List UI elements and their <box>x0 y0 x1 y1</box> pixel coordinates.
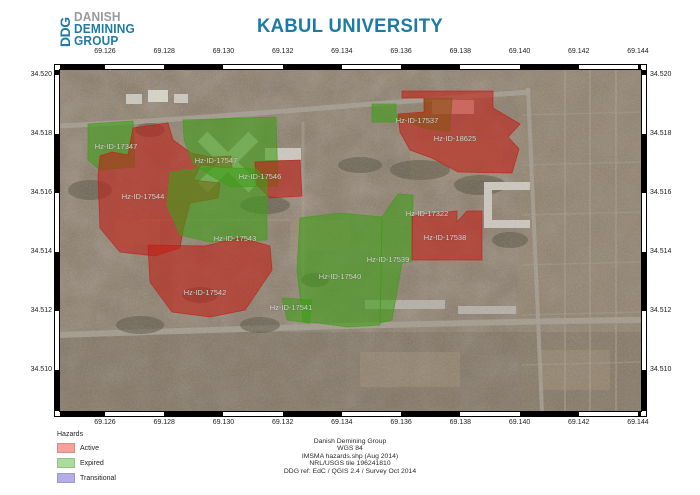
y-axis-label-right: 34.512 <box>650 307 671 314</box>
hazard-label-hz-id-17544: Hz-ID-17544 <box>122 192 165 201</box>
map-credits: Danish Demining GroupWGS 84IMSMA hazards… <box>0 438 700 475</box>
y-axis-label-left: 34.516 <box>22 189 52 196</box>
hazard-label-hz-id-17537: Hz-ID-17537 <box>396 116 439 125</box>
y-axis-label-left: 34.510 <box>22 366 52 373</box>
y-axis-label-right: 34.518 <box>650 130 671 137</box>
y-axis-label-left: 34.518 <box>22 130 52 137</box>
y-axis-label-left: 34.520 <box>22 71 52 78</box>
hazard-label-hz-id-18625: Hz-ID-18625 <box>434 134 477 143</box>
hazard-label-hz-id-17543: Hz-ID-17543 <box>214 234 257 243</box>
x-axis-label-bottom: 69.134 <box>331 419 352 426</box>
x-axis-label-bottom: 69.136 <box>390 419 411 426</box>
y-axis-label-left: 34.512 <box>22 307 52 314</box>
x-axis-label-bottom: 69.140 <box>509 419 530 426</box>
x-axis-label-bottom: 69.130 <box>213 419 234 426</box>
hazard-label-hz-id-17322: Hz-ID-17322 <box>406 209 449 218</box>
hazard-label-hz-id-17546: Hz-ID-17546 <box>239 172 282 181</box>
x-axis-label-top: 69.136 <box>390 48 411 55</box>
satellite-map: Hz-ID-17347Hz-ID-17544Hz-ID-17547Hz-ID-1… <box>60 70 641 411</box>
hazard-label-hz-id-17541: Hz-ID-17541 <box>270 303 313 312</box>
y-axis-label-left: 34.514 <box>22 248 52 255</box>
credits-line: WGS 84 <box>0 445 700 452</box>
x-axis-label-top: 69.138 <box>450 48 471 55</box>
hazard-label-hz-id-17542: Hz-ID-17542 <box>184 288 227 297</box>
page-title: KABUL UNIVERSITY <box>11 16 690 38</box>
x-axis-label-top: 69.128 <box>154 48 175 55</box>
x-axis-label-bottom: 69.132 <box>272 419 293 426</box>
x-axis-label-bottom: 69.144 <box>627 419 648 426</box>
map-border-bottom <box>60 411 641 416</box>
x-axis-label-top: 69.130 <box>213 48 234 55</box>
credits-line: Danish Demining Group <box>0 438 700 445</box>
x-axis-label-top: 69.140 <box>509 48 530 55</box>
hazard-label-hz-id-17538: Hz-ID-17538 <box>424 233 467 242</box>
x-axis-label-top: 69.144 <box>627 48 648 55</box>
map-content: Hz-ID-17347Hz-ID-17544Hz-ID-17547Hz-ID-1… <box>60 70 641 411</box>
x-axis-label-top: 69.134 <box>331 48 352 55</box>
hazard-label-hz-id-17540: Hz-ID-17540 <box>319 272 362 281</box>
legend-label: Transitional <box>80 475 116 482</box>
x-axis-label-bottom: 69.128 <box>154 419 175 426</box>
x-axis-label-top: 69.132 <box>272 48 293 55</box>
credits-line: DDG ref: EdC / QGIS 2.4 / Survey Oct 201… <box>0 468 700 475</box>
map-border-right <box>641 70 646 411</box>
legend-title: Hazards <box>57 431 116 438</box>
x-axis-label-bottom: 69.138 <box>450 419 471 426</box>
map-frame: Hz-ID-17347Hz-ID-17544Hz-ID-17547Hz-ID-1… <box>54 64 647 417</box>
y-axis-label-right: 34.510 <box>650 366 671 373</box>
credits-line: NRL/USGS tile 196241810 <box>0 460 700 467</box>
credits-line: IMSMA hazards.shp (Aug 2014) <box>0 453 700 460</box>
y-axis-label-right: 34.514 <box>650 248 671 255</box>
hazard-label-hz-id-17539: Hz-ID-17539 <box>367 255 410 264</box>
hazard-label-hz-id-17347: Hz-ID-17347 <box>95 142 138 151</box>
map-document: DDG DANISH DEMINING GROUP KABUL UNIVERSI… <box>0 0 700 495</box>
x-axis-label-top: 69.142 <box>568 48 589 55</box>
x-axis-label-bottom: 69.126 <box>94 419 115 426</box>
y-axis-label-right: 34.516 <box>650 189 671 196</box>
x-axis-label-top: 69.126 <box>94 48 115 55</box>
y-axis-label-right: 34.520 <box>650 71 671 78</box>
hazard-label-hz-id-17547: Hz-ID-17547 <box>195 156 238 165</box>
x-axis-label-bottom: 69.142 <box>568 419 589 426</box>
